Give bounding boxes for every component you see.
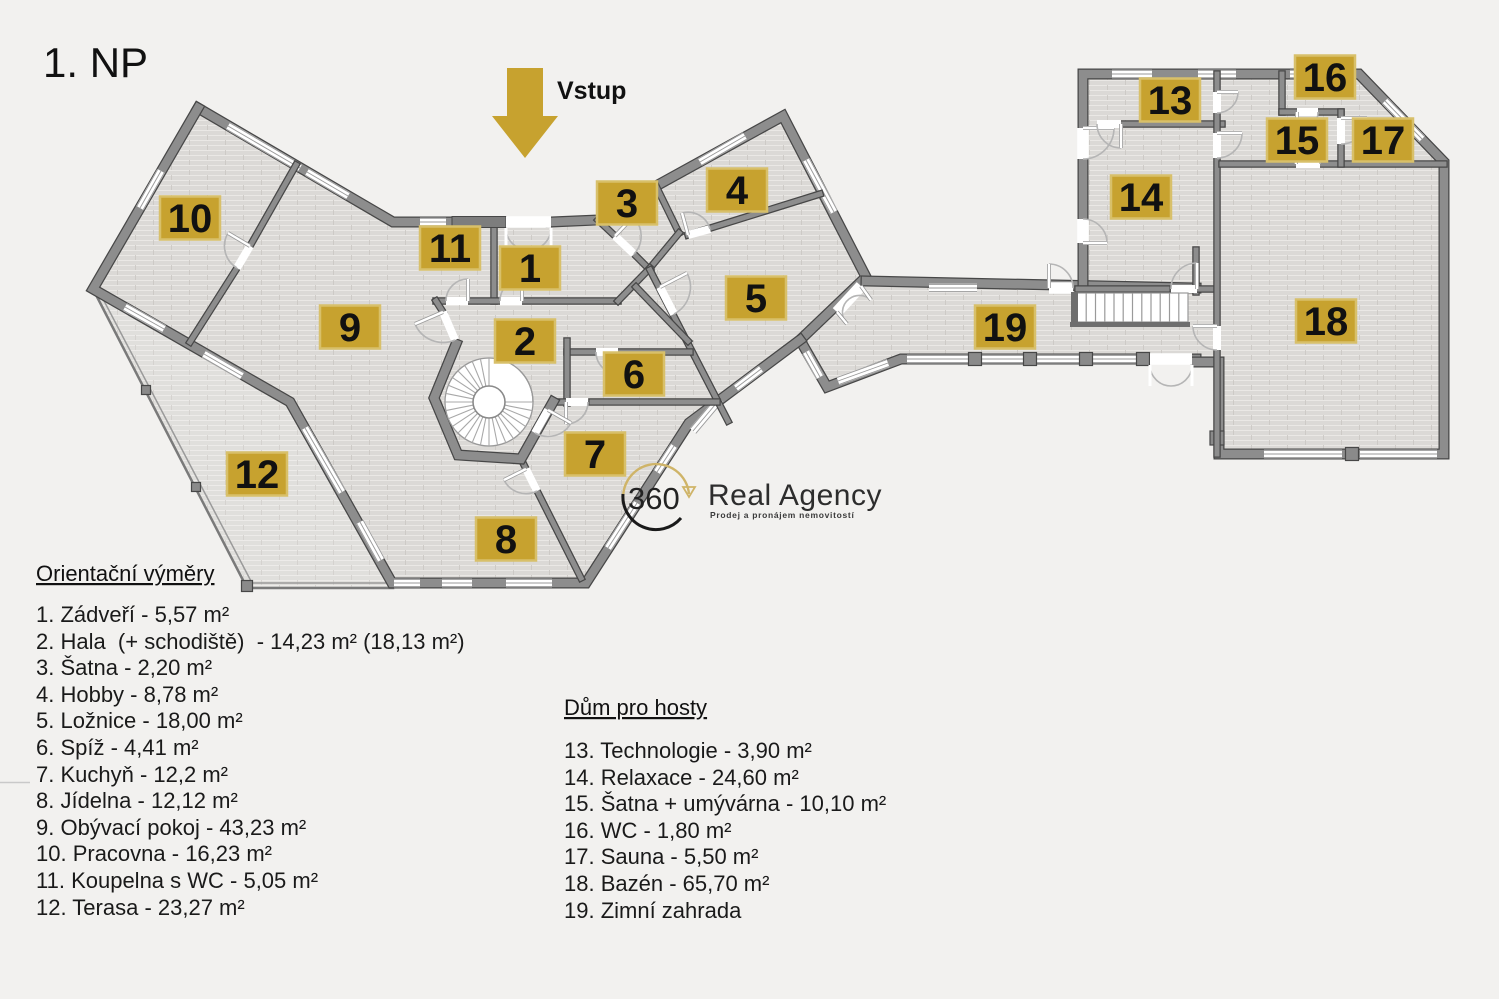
svg-text:8: 8 [495,518,517,562]
svg-text:5. Ložnice - 18,00 m²: 5. Ložnice - 18,00 m² [36,708,243,733]
svg-text:18: 18 [1304,300,1349,344]
svg-text:7. Kuchyň - 12,2 m²: 7. Kuchyň - 12,2 m² [36,762,228,787]
svg-text:Vstup: Vstup [557,77,626,105]
svg-text:18. Bazén - 65,70 m²: 18. Bazén - 65,70 m² [564,871,769,896]
svg-text:3. Šatna - 2,20 m²: 3. Šatna - 2,20 m² [36,655,212,680]
svg-text:14. Relaxace - 24,60 m²: 14. Relaxace - 24,60 m² [564,765,799,790]
svg-text:17. Sauna - 5,50 m²: 17. Sauna - 5,50 m² [564,844,758,869]
svg-text:2: 2 [514,320,536,364]
svg-text:Dům pro hosty: Dům pro hosty [564,695,707,720]
svg-text:Real Agency: Real Agency [708,479,882,512]
svg-text:9. Obývací pokoj - 43,23 m²: 9. Obývací pokoj - 43,23 m² [36,815,306,840]
svg-text:19: 19 [983,306,1028,350]
svg-text:10. Pracovna - 16,23 m²: 10. Pracovna - 16,23 m² [36,841,272,866]
svg-text:11. Koupelna s WC - 5,05 m²: 11. Koupelna s WC - 5,05 m² [36,868,318,893]
svg-text:8. Jídelna - 12,12 m²: 8. Jídelna - 12,12 m² [36,788,238,813]
svg-text:9: 9 [339,306,361,350]
svg-text:12. Terasa - 23,27 m²: 12. Terasa - 23,27 m² [36,895,245,920]
svg-text:6. Spíž - 4,41 m²: 6. Spíž - 4,41 m² [36,735,199,760]
svg-text:360: 360 [628,481,680,516]
svg-text:16: 16 [1303,56,1348,100]
svg-text:1. Zádveří - 5,57 m²: 1. Zádveří - 5,57 m² [36,602,229,627]
svg-text:10: 10 [168,197,213,241]
svg-text:6: 6 [623,353,645,397]
svg-text:1. NP: 1. NP [43,39,148,86]
svg-text:14: 14 [1119,176,1164,220]
svg-text:Orientační výměry: Orientační výměry [36,561,215,586]
svg-text:4: 4 [726,169,749,213]
svg-text:13. Technologie - 3,90 m²: 13. Technologie - 3,90 m² [564,738,812,763]
svg-text:13: 13 [1148,79,1193,123]
svg-text:15: 15 [1275,119,1320,163]
svg-text:Prodej a pronájem nemovitostí: Prodej a pronájem nemovitostí [710,510,855,520]
svg-text:2. Hala (+ schodiště) - 14,2: 2. Hala (+ schodiště) - 14,23 m² (18,13 … [36,629,465,654]
svg-text:11: 11 [429,227,471,271]
svg-text:16. WC - 1,80 m²: 16. WC - 1,80 m² [564,818,731,843]
svg-text:19. Zimní zahrada: 19. Zimní zahrada [564,898,742,923]
svg-text:17: 17 [1361,119,1406,163]
svg-text:15. Šatna + umývárna - 10,10 m: 15. Šatna + umývárna - 10,10 m² [564,791,886,816]
svg-text:1: 1 [519,247,541,291]
svg-text:12: 12 [235,453,280,497]
svg-text:3: 3 [616,182,638,226]
svg-text:4. Hobby - 8,78 m²: 4. Hobby - 8,78 m² [36,682,218,707]
svg-text:7: 7 [584,433,606,477]
svg-text:5: 5 [745,277,767,321]
